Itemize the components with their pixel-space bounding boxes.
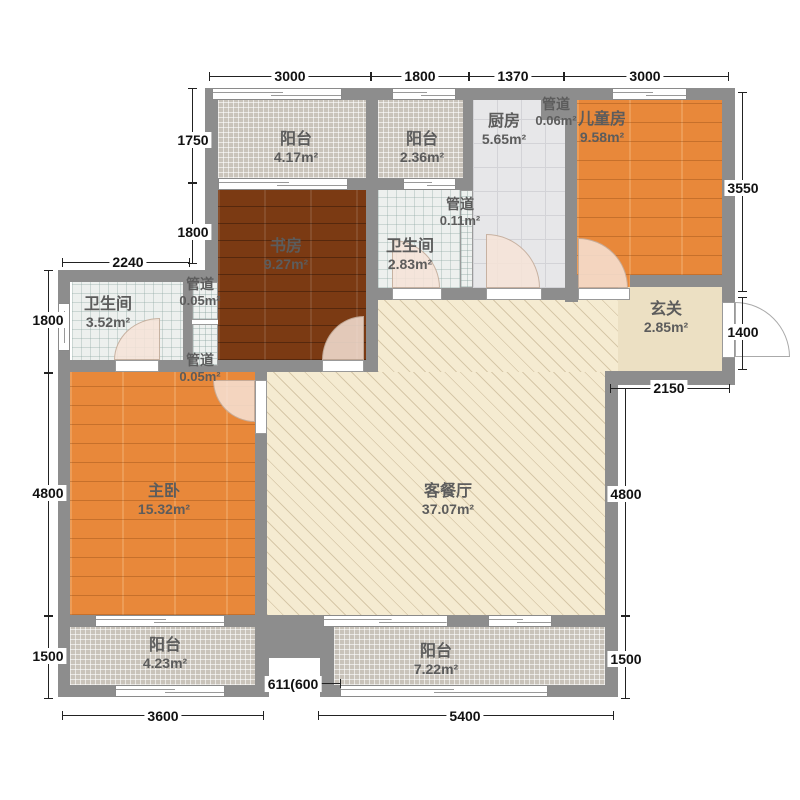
window-living-bottom-2: [488, 615, 552, 627]
wall-kids-bottom: [630, 275, 722, 287]
window-balcony-tm-bottom: [403, 178, 456, 190]
dimline-right-4800: [621, 388, 630, 617]
bath-left-door: [115, 360, 159, 372]
wall-mid-column: [366, 100, 378, 372]
dim-5400: 5400: [446, 708, 483, 724]
dim-611-600: 611(600: [265, 676, 322, 692]
dim-right-1500: 1500: [607, 651, 644, 667]
room-label-balcony-top-mid: 阳台2.36m²: [400, 130, 444, 166]
dim-right-4800: 4800: [607, 486, 644, 502]
window-kids-top: [612, 88, 687, 100]
dim-top-2: 1800: [401, 68, 438, 84]
room-label-master-bedroom: 主卧15.32m²: [138, 482, 190, 518]
dimline-left-inner-2: [188, 182, 197, 264]
floor-living-hallway: [378, 300, 618, 372]
dim-left-4800: 4800: [29, 485, 66, 501]
room-label-balcony-bottom-mid: 阳台7.22m²: [414, 642, 458, 678]
window-balcony-bl-bottom: [115, 685, 225, 697]
wall-balcony2-kitchen: [463, 100, 473, 190]
window-balcony-tm-top: [392, 88, 456, 100]
dim-top-1: 3000: [271, 68, 308, 84]
dim-right-3550: 3550: [724, 180, 761, 196]
room-label-balcony-bottom-left: 阳台4.23m²: [143, 636, 187, 672]
room-label-kids-room: 儿童房9.58m²: [578, 110, 626, 146]
floor-balcony-bottom-mid: [334, 627, 605, 685]
room-label-duct-top: 管道0.06m²: [535, 96, 576, 128]
window-balcony-tl-bottom: [218, 178, 348, 190]
floor-plan: 阳台4.17m² 阳台2.36m² 厨房5.65m² 管道0.06m² 儿童房9…: [0, 0, 800, 800]
room-label-duct-left-upper: 管道0.05m²: [179, 276, 220, 308]
dim-right-1400: 1400: [724, 324, 761, 340]
room-label-kitchen: 厨房5.65m²: [482, 112, 526, 148]
dim-top-4: 3000: [626, 68, 663, 84]
kids-room-door: [578, 288, 630, 300]
room-label-duct-left-lower: 管道0.05m²: [179, 352, 220, 384]
dim-left-1800: 1800: [29, 312, 66, 328]
kitchen-door: [486, 288, 542, 300]
room-label-bath-mid: 卫生间2.83m²: [386, 237, 434, 273]
dim-top-3: 1370: [494, 68, 531, 84]
dim-2240: 2240: [109, 254, 146, 270]
wall-notch-top: [269, 627, 320, 658]
dim-2150: 2150: [650, 380, 687, 396]
dim-left-inner-1: 1750: [174, 132, 211, 148]
wall-living-right: [605, 385, 618, 627]
room-label-entry-hall: 玄关2.85m²: [644, 300, 688, 336]
window-living-bottom-1: [323, 615, 448, 627]
study-door: [322, 360, 364, 372]
window-balcony-tl-top: [212, 88, 342, 100]
bath-mid-door: [392, 288, 442, 300]
dim-3600: 3600: [144, 708, 181, 724]
room-label-duct-mid: 管道0.11m²: [440, 196, 480, 228]
room-label-bath-left: 卫生间3.52m²: [84, 295, 132, 331]
dim-left-1500: 1500: [29, 648, 66, 664]
window-balcony-bm-bottom: [340, 685, 548, 697]
dim-left-inner-2: 1800: [174, 224, 211, 240]
master-bedroom-door: [255, 380, 267, 434]
window-bedroom-bottom: [95, 615, 225, 627]
room-label-balcony-top-left: 阳台4.17m²: [274, 130, 318, 166]
room-label-living-dining: 客餐厅37.07m²: [422, 482, 474, 518]
room-label-study: 书房9.27m²: [264, 237, 308, 273]
wall-left-upper: [205, 100, 218, 282]
